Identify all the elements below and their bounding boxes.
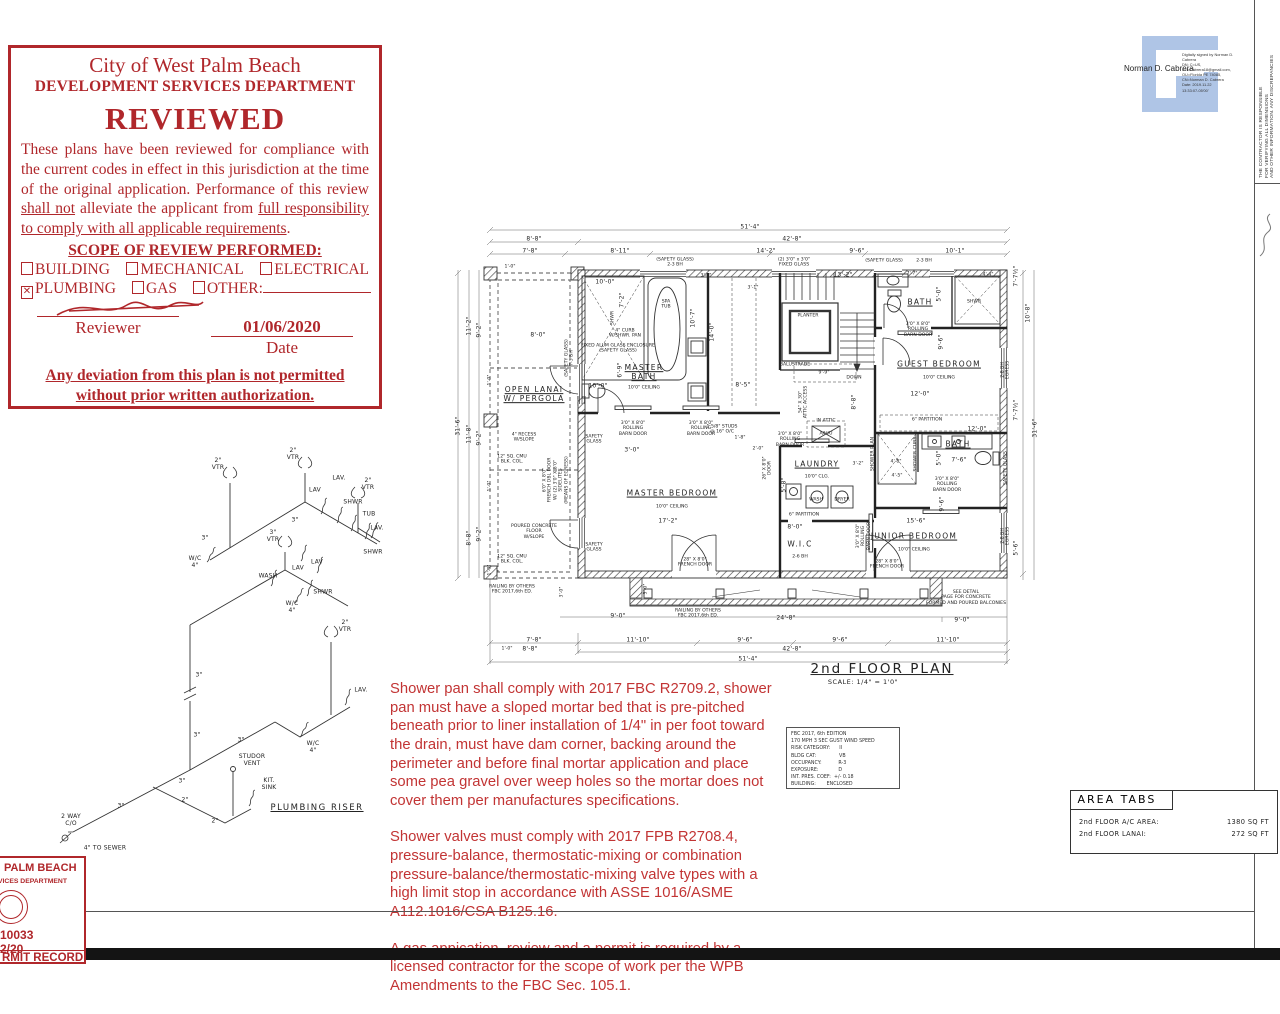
area-row: 2nd FLOOR A/C AREA:1380 SQ FT [1079, 817, 1269, 829]
plan-label: 3'-0" [624, 446, 639, 453]
plan-label: 7'-2" [618, 292, 625, 307]
plan-label: SAFETY GLASS [1003, 451, 1008, 485]
plan-label: POURED CONCRETE FLOOR W/SLOPE [511, 524, 557, 540]
riser-label: 2" VTR [287, 447, 300, 461]
plan-label: 1'-0" [487, 375, 492, 386]
plan-label: 10'0" CLG. [805, 474, 829, 479]
edge-seal-scribble [1256, 212, 1278, 258]
riser-label: 3" VTR [267, 529, 280, 543]
riser-label: TUB [363, 510, 376, 517]
plan-label: 3'-0" [643, 584, 648, 595]
plan-label: 51'-4" [738, 655, 757, 662]
plan-label: 9'-6" [832, 636, 847, 643]
stamp-signature-row: Reviewer 01/06/2020 Date [21, 315, 369, 358]
plan-label: 2-8 BH EGRESS [1001, 361, 1012, 379]
plan-label: 2-6 BH [792, 554, 808, 559]
stamp-body-segment: shall not [21, 200, 75, 217]
riser-label: LAV. [354, 686, 367, 693]
stamp-reviewed-word: REVIEWED [21, 101, 369, 137]
plan-label: JUNIOR BEDROOM [871, 533, 957, 542]
plan-label: (SAFETY GLASS) 7-3 BH [565, 339, 576, 377]
plan-label: 9'-0" [954, 616, 969, 623]
plan-label: 26" X 8'0" DOOR [763, 456, 774, 479]
plan-label: 7'-8" [522, 247, 537, 254]
plan-label: 10'-8" [1024, 303, 1031, 322]
plan-label: 7'-8" [526, 636, 541, 643]
scope-item-building: BUILDING [21, 261, 110, 279]
sheet-bottom-rule [86, 911, 1255, 912]
plan-label: 9'-2" [475, 430, 482, 445]
plan-label: 4'-4" [983, 272, 994, 277]
plan-label: 13'-2" [833, 271, 852, 278]
plan-label: 6" PARTITION [789, 512, 819, 517]
checkbox-icon [260, 262, 272, 275]
plan-label: 8'-11" [610, 247, 629, 254]
plan-label: 10'-0" [595, 278, 614, 285]
plan-label: 11'-10" [936, 636, 959, 643]
plan-label: 4'-5" [892, 473, 903, 478]
plan-label: WASH [809, 497, 823, 502]
plan-label: 7'-7½" [1012, 265, 1019, 286]
riser-label: 2" [182, 796, 189, 803]
sheet-bottom-black-bar [86, 948, 1280, 960]
plan-label: 8'-8" [465, 530, 472, 545]
review-date-value: 01/06/2020 [195, 317, 369, 337]
plan-label: 3'-2" [853, 461, 864, 466]
plan-label: 3'0" X 8'0" ROLLING BARN DOOR [619, 421, 647, 437]
plan-label: 9'-9" [819, 370, 830, 375]
riser-label: 3" [179, 777, 186, 784]
plan-label: 14'-2" [756, 247, 775, 254]
scanned-plan-sheet: { "stamp": { "title": "City of West Palm… [0, 0, 1280, 960]
plan-label: 15'-6" [906, 517, 925, 524]
plan-label: 51'-4" [740, 223, 759, 230]
riser-title: PLUMBING RISER [270, 803, 363, 813]
scope-row: BUILDINGMECHANICALELECTRICAL [21, 261, 369, 279]
riser-label: 2" VTR [212, 457, 225, 471]
plan-scale: SCALE: 1/4" = 1'0" [828, 679, 898, 687]
area-label: 2nd FLOOR A/C AREA: [1079, 817, 1159, 829]
stamp-footer-warning: Any deviation from this plan is not perm… [21, 366, 369, 405]
permit-record-stamp: PALM BEACH VICES DEPARTMENT 10033 2/20 R… [0, 856, 86, 964]
riser-label: 3" [292, 516, 299, 523]
plan-label: 10'-0" [588, 382, 607, 389]
riser-label: STUDOR VENT [239, 753, 266, 767]
plan-label: 3'-0" [559, 587, 564, 598]
scope-title: SCOPE OF REVIEW PERFORMED: [21, 242, 369, 260]
stamp-department: DEVELOPMENT SERVICES DEPARTMENT [21, 78, 369, 96]
plan-label: 10'0" CEILING [656, 504, 688, 509]
plan-label: DOWN [846, 375, 861, 380]
plumbing-review-notes: Shower pan shall comply with 2017 FBC R2… [390, 680, 774, 1014]
area-value: 272 SQ FT [1232, 829, 1269, 841]
riser-label: LAV. [332, 474, 345, 481]
plan-label: MASTER BATH [625, 364, 664, 382]
date-block: 01/06/2020 Date [195, 315, 369, 358]
plan-label: 4'-8" [891, 459, 902, 464]
wind-data-line: RISK CATEGORY: II [791, 745, 895, 752]
riser-label: 2" [212, 817, 219, 824]
plan-label: SPA TUB [661, 300, 670, 311]
plan-label: 9'-0" [610, 612, 625, 619]
note-paragraph: Shower pan shall comply with 2017 FBC R2… [390, 680, 774, 810]
riser-drawing [55, 440, 385, 860]
plan-label: 10'0" CEILING [628, 385, 660, 390]
plan-label: 14'-0" [708, 322, 715, 341]
riser-label: W/C 4" [189, 555, 202, 569]
riser-label: WASH [259, 572, 278, 579]
scope-item-other: OTHER: [193, 280, 371, 299]
plan-label: 12'-0" [910, 390, 929, 397]
plan-label: 4" CURB W/SHWR. PAN [609, 329, 641, 340]
digital-signature-details: Digitally signed by Norman D.CabreraDN: … [1182, 52, 1242, 93]
plan-label: 6'-9" [616, 362, 623, 377]
reviewer-signature-scribble [49, 293, 209, 323]
plan-label: (2) 3'0" x 3'0" FIXED GLASS [778, 258, 810, 269]
stamp-body-segment: . [287, 220, 291, 237]
area-row: 2nd FLOOR LANAI:272 SQ FT [1079, 829, 1269, 841]
plan-label: 10'-7" [689, 308, 696, 327]
plan-label: 11'-2" [465, 316, 472, 335]
plan-label: 12" SQ. CMU BLK. COL. [497, 555, 526, 566]
plan-label: 24'-8" [776, 614, 795, 621]
checkbox-checked-icon: ✕ [21, 286, 33, 299]
riser-label: LAV [309, 486, 321, 493]
plan-label: 5'-0" [935, 286, 942, 301]
plan-label: 1'-8" [735, 435, 746, 440]
other-blank-line [263, 280, 371, 293]
stamp-body-text: These plans have been reviewed for compl… [21, 140, 369, 239]
scope-item-electrical: ELECTRICAL [260, 261, 369, 279]
area-value: 1380 SQ FT [1227, 817, 1269, 829]
riser-label: SHWR [313, 588, 332, 595]
permit-city-line: PALM BEACH [4, 862, 77, 874]
plan-label: 10'-1" [945, 247, 964, 254]
permit-number: 10033 [0, 928, 33, 942]
plan-title: 2nd FLOOR PLAN [810, 662, 953, 678]
plan-label: SEE DETAIL PAGE FOR CONCRETE FORMED AND … [926, 590, 1006, 606]
riser-label: 3" [238, 736, 245, 743]
plan-label: 5'-0" [935, 450, 942, 465]
wind-design-data-box: FBC 2017, 6th EDITION170 MPH 3 SEC GUST … [786, 727, 900, 789]
plan-label: SAFETY GLASS [585, 435, 602, 446]
riser-label: KIT. SINK [262, 777, 277, 791]
date-label: Date [195, 338, 369, 358]
plan-label: 10'0" CEILING [923, 375, 955, 380]
area-label: 2nd FLOOR LANAI: [1079, 829, 1146, 841]
plan-label: 5'-6" [1012, 540, 1019, 555]
stamp-city-title: City of West Palm Beach [21, 53, 369, 78]
plan-label: 2-3 BH [916, 258, 932, 263]
plan-label: 1'-0" [502, 646, 513, 651]
plan-label: 7'-7½" [1012, 399, 1019, 420]
plan-label: 3'0" X 8'0" ROLLING BARN DOOR [904, 322, 932, 338]
plan-label: IN ATTIC [816, 418, 835, 423]
riser-label: W/C 4" [286, 600, 299, 614]
plan-label: 11'-10" [626, 636, 649, 643]
checkbox-icon [126, 262, 138, 275]
plan-label: 2-8 BH EGRESS [1001, 527, 1012, 545]
riser-label: 2 WAY C/O [61, 813, 81, 827]
plan-label: 7'-7" [907, 271, 918, 276]
plan-label: 3'0" X 8'0" ROLLING BARN DOOR [856, 522, 872, 550]
plan-label: 9'-2" [475, 322, 482, 337]
riser-label: 2" VTR [339, 619, 352, 633]
plan-label: (SAFETY GLASS) [865, 258, 903, 263]
wind-data-line: OCCUPANCY: R-3 [791, 760, 895, 767]
plan-label: 9'-6" [937, 334, 944, 349]
plan-label: 6" PARTITION [912, 417, 942, 422]
plan-label: 9'-6" [737, 636, 752, 643]
riser-label: 3" [202, 534, 209, 541]
plan-label: 2'-0" [753, 446, 764, 451]
scope-label: OTHER: [207, 280, 263, 297]
plan-label: 3'0" X 8'0" ROLLING BARN DOOR [687, 421, 715, 437]
plan-label: SHOWER CURB [913, 437, 918, 472]
checkbox-icon [21, 262, 33, 275]
plan-label: 1'-0" [505, 264, 516, 269]
plan-label: FIXED ALUM GLASS ENCLOSURE (SAFETY GLASS… [581, 344, 655, 355]
plan-label: 8'-0" [530, 331, 545, 338]
plan-label: 3'0" X 8'0" ROLLING BARN DOOR [776, 432, 804, 448]
wind-data-line: 170 MPH 3 SEC GUST WIND SPEED [791, 738, 895, 745]
plan-label: OPEN LANAI W/ PERGOLA [504, 386, 565, 404]
plan-label: SHWR [610, 311, 615, 325]
plan-label: PLANTER [798, 313, 819, 318]
plan-label: 1'-0" [487, 565, 492, 576]
area-tabs-title: AREA TABS [1070, 790, 1174, 810]
plan-label: A/H/U [819, 431, 832, 436]
area-tabs-rows: 2nd FLOOR A/C AREA:1380 SQ FT2nd FLOOR L… [1079, 817, 1269, 841]
plan-label: 12'-0" [967, 425, 986, 432]
stamp-body-segment: These plans have been reviewed for compl… [21, 141, 369, 198]
scope-label: MECHANICAL [140, 261, 243, 278]
riser-label: 2" VTR [362, 477, 375, 491]
plan-label: 54" X 30" ATTIC ACCESS [799, 386, 810, 419]
wind-data-line: EXPOSURE: D [791, 767, 895, 774]
plan-label: 5'-8" [780, 477, 787, 492]
plan-label: 8'-8" [526, 235, 541, 242]
plan-label: 42'-8" [782, 235, 801, 242]
plan-label: 3'-1" [748, 285, 759, 290]
permit-divider [0, 950, 84, 951]
riser-label: LAV [311, 558, 323, 565]
riser-label: SHWR [363, 548, 382, 555]
floor-plan: 51'-4"8'-8"42'-8"7'-8"8'-11"14'-2"9'-6"1… [450, 218, 1040, 693]
riser-label: 3" [196, 671, 203, 678]
plan-label: (SAFETY GLASS) 2-3 BH [656, 258, 694, 269]
scope-label: BUILDING [35, 261, 110, 278]
note-paragraph: Shower valves must comply with 2017 FPB … [390, 828, 774, 921]
plan-label: 9'-6" [938, 496, 945, 511]
plan-label: 31'-6" [1031, 418, 1038, 437]
plan-label: MASTER BEDROOM [627, 490, 718, 499]
plan-label: 9'-2" [475, 526, 482, 541]
scope-label: ELECTRICAL [274, 261, 369, 278]
plan-label: 28" X 8'0" FRENCH DOOR [870, 560, 904, 571]
wind-data-line: BLDG CAT: VB [791, 753, 895, 760]
plan-label: BATH [907, 299, 932, 308]
plan-label: W.I.C [787, 541, 812, 550]
plan-label: RAILING BY OTHERS FBC 2017,6th ED. [489, 585, 535, 596]
plan-label: BATH [945, 441, 970, 450]
plan-label: 42'-8" [782, 645, 801, 652]
plan-label: 31'-6" [454, 416, 461, 435]
plan-label: RAILING BY OTHERS FBC 2017,6th ED. [675, 609, 721, 620]
wind-data-line: INT. PRES. COEF: +/- 0.18 [791, 774, 895, 781]
title-block-divider [1254, 183, 1280, 184]
plan-label: SAFETY GLASS [585, 543, 602, 554]
area-tabs-box: AREA TABS 2nd FLOOR A/C AREA:1380 SQ FT2… [1070, 790, 1278, 854]
riser-label: LAV [292, 564, 304, 571]
plan-label: 8'-0" [787, 523, 802, 530]
plan-label: 8'-8" [850, 394, 857, 409]
plan-label: 28" X 8'0" FRENCH DOOR [678, 558, 712, 569]
plan-label: 8'-5" [735, 381, 750, 388]
riser-label: W/C 4" [307, 740, 320, 754]
plan-label: 8'-8" [522, 645, 537, 652]
contractor-responsibility-note: THE CONTRACTOR IS RESPONSIBLEFOR VERIFYI… [1259, 50, 1276, 178]
plan-label: 4" RECESS W/SLOPE [512, 433, 537, 444]
review-stamp: City of West Palm Beach DEVELOPMENT SERV… [8, 45, 382, 409]
plan-label: SHOWER PLAN [870, 437, 875, 471]
wind-data-line: BUILDING: ENCLOSED [791, 781, 895, 788]
riser-label: SHWR [343, 498, 362, 505]
plan-label: 7'-6" [951, 456, 966, 463]
plumbing-riser-diagram: 2" VTR2" VTR2" VTR3" VTR2" VTRLAVLAV.SHW… [55, 440, 385, 860]
wind-data-line: FBC 2017, 6th EDITION [791, 731, 895, 738]
contractor-note-line: AND OTHER INFORMATION. ANY DISCREPANCIES [1270, 50, 1276, 178]
plan-label: LAUNDRY [795, 461, 840, 470]
plan-label: 3'-0" [701, 273, 712, 278]
plan-label: 12" SQ. CMU BLK. COL. [497, 455, 526, 466]
riser-label: LAV. [370, 524, 383, 531]
plan-label: 9'-6" [849, 247, 864, 254]
plan-label: SHWR [967, 299, 981, 304]
plan-label: 3'0" X 8'0" ROLLING BARN DOOR [933, 477, 961, 493]
plan-label: 11'-8" [465, 424, 472, 443]
stamp-body-segment: alleviate the applicant from [75, 200, 258, 217]
riser-label: 3" [194, 731, 201, 738]
wind-data-lines: FBC 2017, 6th EDITION170 MPH 3 SEC GUST … [791, 731, 895, 789]
plan-label: 1'-0" [487, 481, 492, 492]
plan-label: BALUSTRADE [780, 362, 810, 367]
plan-label: GUEST BEDROOM [897, 361, 981, 370]
permit-dept-line: VICES DEPARTMENT [0, 878, 67, 885]
city-seal [0, 890, 28, 924]
scope-item-mechanical: MECHANICAL [126, 261, 243, 279]
reviewer-block: Reviewer [21, 315, 195, 358]
plan-label: 17'-2" [658, 517, 677, 524]
plan-label: 10'0" CEILING [898, 547, 930, 552]
plan-label: 6'0" X 8'0" FRENCH DBL DOOR W/ (2) 3'0" … [542, 456, 569, 504]
riser-label: 3" [118, 802, 125, 809]
riser-label: 4" TO SEWER [84, 844, 126, 851]
permit-record-label: RMIT RECORD [2, 952, 83, 964]
plan-label: DRYER [834, 497, 849, 502]
signature-detail-line: 13:33:07-05'00' [1182, 88, 1242, 93]
